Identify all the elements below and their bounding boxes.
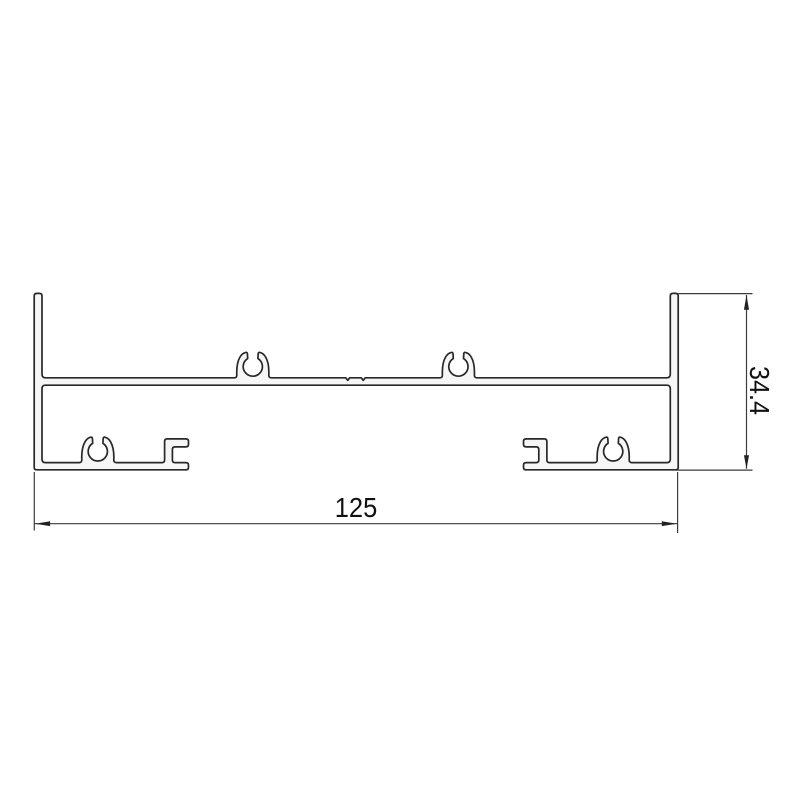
svg-text:125: 125 bbox=[335, 492, 378, 523]
svg-text:34.4: 34.4 bbox=[744, 366, 775, 415]
